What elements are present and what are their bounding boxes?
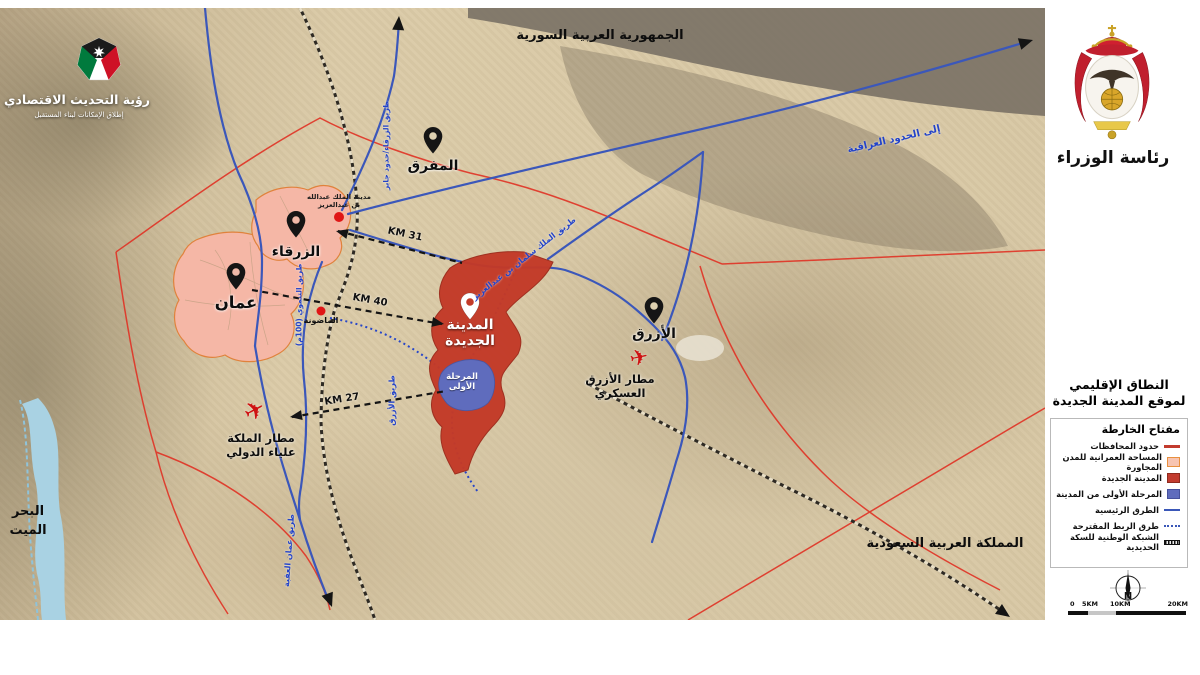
scale-tick-5: 5KM <box>1082 600 1098 608</box>
legend-key-title: مفتاح الخارطة <box>1055 423 1180 436</box>
scale-tick-10: 10KM <box>1110 600 1131 608</box>
new-city-swatch <box>1167 473 1180 483</box>
legend: مفتاح الخارطة حدود المحافظات المساحة الع… <box>1050 418 1188 568</box>
scale-bar: 0 5KM 10KM 20KM <box>1068 600 1188 622</box>
scale-tick-0: 0 <box>1070 600 1075 608</box>
legend-item-new-city: المدينة الجديدة <box>1055 470 1180 486</box>
saudi-arabia-label: المملكة العربية السعودية <box>845 536 1045 551</box>
road-label-tanmawi: طريق التنموي (100م) <box>295 264 304 338</box>
map-graphics <box>0 8 1045 620</box>
azraq-label: الأزرق <box>622 326 686 342</box>
mafraq-pin-icon <box>423 126 443 154</box>
governorate-border-swatch <box>1164 445 1180 448</box>
vision-logo-heptagon-icon <box>75 36 123 84</box>
legend-title-line1: النطاق الإقليمي <box>1046 377 1192 392</box>
king-abdullah-city-label: مدينة الملك عبدالله بن عبدالعزيز <box>292 194 386 209</box>
queen-alia-airport-label: مطار الملكة علياء الدولي <box>216 432 306 459</box>
pm-coat-of-arms <box>1063 24 1161 144</box>
king-abdullah-city-dot <box>334 212 344 222</box>
zarqa-label: الزرقاء <box>264 244 328 260</box>
dead-sea-label: البحر الميت <box>4 502 52 540</box>
road-label-zarqa-jaber: طريق الزرقاء/حدود جابر <box>382 98 391 194</box>
syria-label: الجمهورية العربية السورية <box>500 28 700 43</box>
azraq-military-airport-label: مطار الأزرق العسكري <box>582 373 658 400</box>
proposed-road-swatch <box>1164 525 1180 527</box>
page: رؤية التحديث الاقتصادي إطلاق الإمكانات ل… <box>0 0 1200 675</box>
road-label-azraq: طريق الأزرق <box>388 367 397 435</box>
madouneh-dot <box>317 307 326 316</box>
phase1-swatch <box>1167 489 1180 499</box>
pm-office-title: رئاسة الوزراء <box>1046 148 1180 168</box>
legend-item-main-roads: الطرق الرئيسية <box>1055 502 1180 518</box>
main-road-swatch <box>1164 509 1180 512</box>
amman-label: عمان <box>202 293 270 312</box>
legend-item-railway: الشبكة الوطنية للسكة الحديدية <box>1055 534 1180 550</box>
satellite-map: رؤية التحديث الاقتصادي إطلاق الإمكانات ل… <box>0 8 1045 620</box>
legend-item-urban-area: المساحة العمرانية للمدن المجاورة <box>1055 454 1180 470</box>
zarqa-pin-icon <box>286 210 306 238</box>
phase1-label: المرحلة الأولى <box>436 372 488 392</box>
legend-title-line2: لموقع المدينة الجديدة <box>1046 393 1192 408</box>
vision-subtitle: إطلاق الإمكانات لبناء المستقبل <box>8 111 150 119</box>
legend-item-phase1: المرحلة الأولى من المدينة <box>1055 486 1180 502</box>
azraq-pin-icon <box>644 296 664 324</box>
vision-title: رؤية التحديث الاقتصادي <box>8 92 150 107</box>
railway-swatch <box>1164 540 1180 545</box>
mafraq-label: المفرق <box>401 158 465 174</box>
scale-bar-segments <box>1068 611 1186 615</box>
urban-area-swatch <box>1167 457 1180 467</box>
scale-tick-20: 20KM <box>1167 600 1188 608</box>
new-city-label: المدينة الجديدة <box>430 318 510 349</box>
amman-pin-icon <box>226 262 246 290</box>
